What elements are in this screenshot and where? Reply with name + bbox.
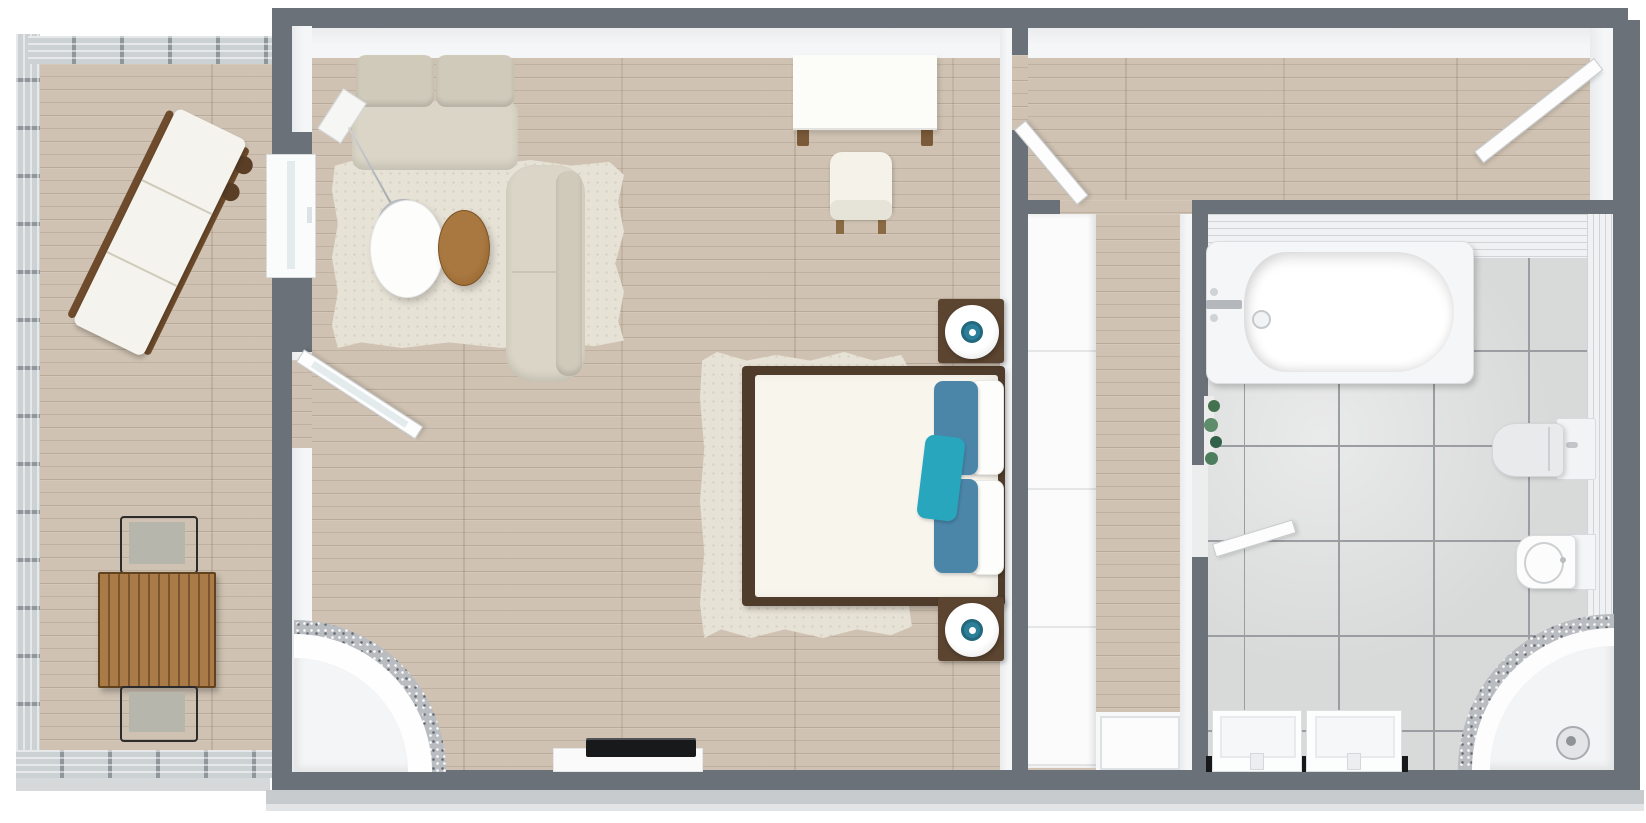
balcony-doorway bbox=[292, 360, 312, 448]
sink-faucet bbox=[1347, 753, 1361, 770]
chair-fabric bbox=[129, 692, 185, 732]
chaise-seam bbox=[512, 271, 556, 273]
floor-slab-edge bbox=[266, 790, 1644, 804]
sink-basin bbox=[1220, 716, 1296, 758]
floor-plan-3d bbox=[0, 0, 1646, 823]
armchair-leg bbox=[836, 220, 844, 234]
chair-fabric bbox=[129, 522, 185, 564]
bidet-basin bbox=[1524, 542, 1564, 584]
console-desk bbox=[793, 55, 937, 130]
wall-right bbox=[1613, 20, 1640, 790]
glass-railing-top bbox=[28, 36, 274, 64]
glass-railing-left bbox=[16, 34, 40, 764]
bathtub-faucet bbox=[1206, 300, 1242, 309]
outdoor-chair-bottom bbox=[120, 686, 198, 742]
armchair-leg bbox=[878, 220, 886, 234]
shower-head-center bbox=[1566, 736, 1576, 746]
bathtub-basin bbox=[1244, 252, 1454, 372]
sofa-back-cushion bbox=[436, 55, 514, 107]
wall-left-segment bbox=[292, 274, 312, 352]
bidet-faucet bbox=[1560, 557, 1566, 563]
plant-leaf bbox=[1204, 418, 1218, 432]
toilet-lid-seam bbox=[1548, 427, 1550, 471]
sink-faucet bbox=[1250, 753, 1264, 770]
toilet-bowl bbox=[1492, 423, 1564, 477]
sofa-back-cushion bbox=[356, 55, 434, 107]
wood-side-table bbox=[438, 210, 490, 286]
inner-doorway bbox=[1012, 55, 1028, 130]
plant-leaf bbox=[1205, 452, 1218, 465]
plant-leaf bbox=[1210, 436, 1222, 448]
lamp-top-glint bbox=[969, 329, 976, 336]
chaise-back bbox=[556, 171, 582, 376]
chaise-sofa bbox=[506, 165, 585, 382]
sink-right bbox=[1306, 710, 1402, 772]
sink-left bbox=[1212, 710, 1302, 772]
bathroom-wall-left-lower bbox=[1192, 557, 1208, 770]
wall-bottom bbox=[272, 770, 1640, 790]
tv bbox=[586, 738, 696, 757]
hallway-floor bbox=[1096, 214, 1180, 712]
right-wall-face bbox=[1590, 28, 1613, 200]
window bbox=[266, 154, 316, 278]
bathroom-doorway bbox=[1192, 465, 1208, 557]
floor-slab-edge-light bbox=[266, 804, 1644, 811]
armchair-back bbox=[830, 200, 892, 220]
sofa bbox=[352, 53, 518, 170]
window-handle bbox=[307, 207, 312, 223]
window-glass bbox=[287, 161, 295, 269]
plant-leaf bbox=[1208, 400, 1220, 412]
outdoor-dining-table bbox=[98, 572, 216, 688]
armchair bbox=[828, 150, 894, 230]
faucet-handle bbox=[1210, 314, 1218, 322]
wall-top bbox=[272, 8, 1628, 28]
sink-basin bbox=[1315, 716, 1395, 758]
hallway-wall-face bbox=[1180, 200, 1192, 770]
lamp-bottom-glint bbox=[969, 627, 976, 634]
oval-coffee-table bbox=[370, 200, 444, 298]
sofa-seat bbox=[352, 101, 518, 170]
entry-door bbox=[1100, 716, 1180, 770]
outdoor-chair-top bbox=[120, 516, 198, 574]
wall-left-outer bbox=[272, 8, 292, 770]
balcony-slab-edge bbox=[16, 778, 270, 791]
glass-railing-bottom bbox=[16, 750, 272, 778]
bathtub-drain bbox=[1252, 310, 1271, 329]
hallway-wardrobe bbox=[1028, 214, 1096, 768]
wall-stub bbox=[1012, 200, 1060, 214]
toilet-flush-button bbox=[1566, 442, 1578, 448]
faucet-handle bbox=[1210, 288, 1218, 296]
bathroom-wall-top bbox=[1192, 200, 1613, 214]
